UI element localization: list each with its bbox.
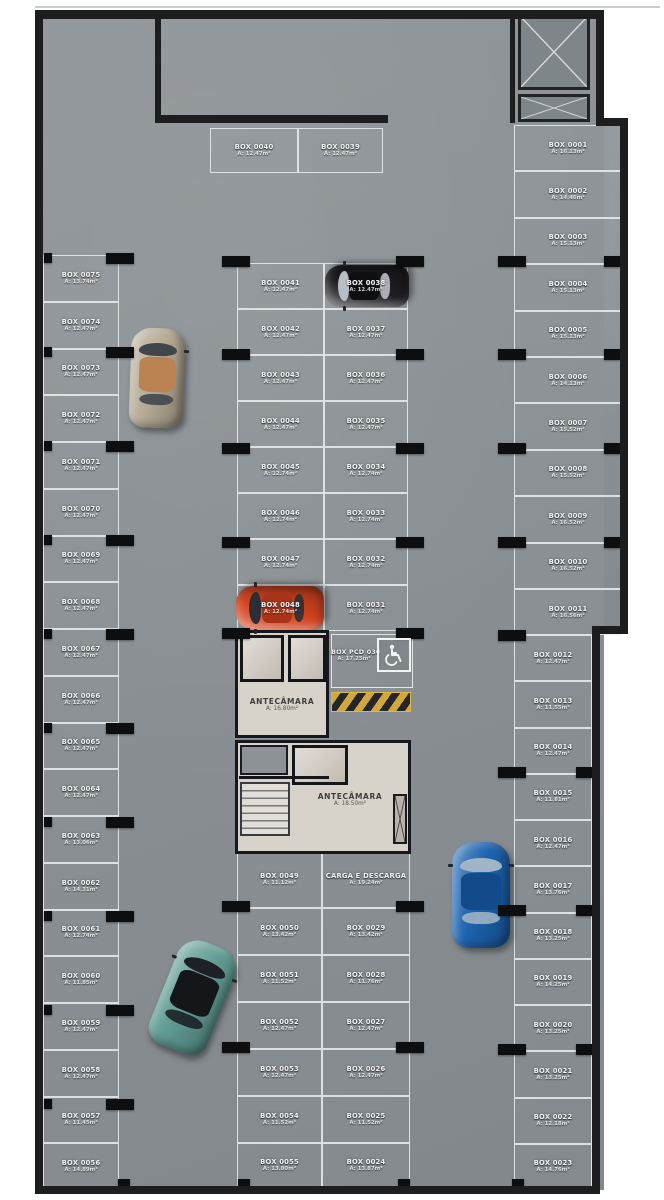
wall-bottom [35,1186,600,1194]
stall-label: BOX 0007 [549,419,588,427]
stall-area: A: 12.47m² [536,844,569,851]
stall-area: A: 13.25m² [536,936,569,943]
stall-area: A: 12.18m² [536,1121,569,1128]
structural-column [106,347,134,358]
structural-column [604,537,620,548]
blue-car [452,842,510,948]
parking-stall-box-0070: BOX 0070A: 12.47m² [43,489,119,536]
stall-label: BOX 0067 [62,645,101,653]
stall-area: A: 12.47m² [264,379,297,386]
parking-stall-box-0064: BOX 0064A: 12.47m² [43,769,119,816]
stall-area: A: 13.76m² [536,890,569,897]
wall-left [35,10,43,1194]
parking-stall-box-0033: BOX 0033A: 12.74m² [324,493,408,539]
structural-column [106,817,134,828]
stall-label: BOX 0024 [347,1158,386,1166]
parking-stall-carga-e-descarga: CARGA E DESCARGAA: 19.24m² [322,850,410,908]
parking-stall-box-0054: BOX 0054A: 11.52m² [237,1096,322,1143]
stall-area: A: 11.52m² [263,1120,296,1127]
stall-area: A: 12.47m² [64,1027,97,1034]
parking-stall-box-0021: BOX 0021A: 13.25m² [514,1051,592,1097]
stall-area: A: 12.74m² [264,517,297,524]
stall-area: A: 15.13m² [551,288,584,295]
stall-label: BOX 0063 [62,832,101,840]
stall-label: BOX 0009 [549,512,588,520]
stall-label: BOX 0014 [534,743,573,751]
parking-stall-box-0010: BOX 0010A: 16.52m² [514,543,622,589]
stall-label: BOX 0055 [260,1158,299,1166]
parking-stall-box-0019: BOX 0019A: 14.25m² [514,959,592,1005]
structural-column [498,537,526,548]
core-lobby-room [292,745,348,785]
structural-column [222,628,250,639]
parking-stall-box-0029: BOX 0029A: 13.42m² [322,908,410,955]
stall-label: BOX 0075 [62,271,101,279]
parking-stall-box-0018: BOX 0018A: 13.25m² [514,913,592,959]
stall-label: BOX 0017 [534,882,573,890]
stall-area: A: 14.46m² [551,195,584,202]
structural-column [498,905,526,916]
parking-stall-box-0022: BOX 0022A: 12.18m² [514,1098,592,1144]
stall-area: A: 16.56m² [551,613,584,620]
parking-stall-box-0050: BOX 0050A: 13.42m² [237,908,322,955]
stall-area: A: 14.31m² [64,887,97,894]
structural-column [106,441,134,452]
stall-label: BOX 0036 [347,371,386,379]
stall-area: A: 11.76m² [349,979,382,986]
stall-area: A: 12.47m² [64,793,97,800]
parking-stall-box-0002: BOX 0002A: 14.46m² [514,171,622,217]
stall-label: BOX 0018 [534,928,573,936]
structural-column [44,253,52,263]
stall-area: A: 11.52m² [263,979,296,986]
stall-label: BOX 0066 [62,692,101,700]
stall-area: A: 13.42m² [263,932,296,939]
stall-label: BOX 0011 [549,605,588,613]
stall-label: BOX 0062 [62,879,101,887]
structural-column [396,537,424,548]
stall-area: A: 12.47m² [324,151,357,158]
stall-area: A: 12.47m² [349,333,382,340]
stall-label: BOX 0060 [62,972,101,980]
structural-column [396,256,424,267]
parking-stall-box-0068: BOX 0068A: 12.47m² [43,582,119,629]
structural-column [106,1099,134,1110]
stall-area: A: 12.47m² [64,326,97,333]
structural-column [44,441,52,451]
stall-area: A: 19.24m² [349,880,382,887]
car-mirror-right [184,350,189,353]
structural-column [604,349,620,360]
stall-label: BOX 0004 [549,280,588,288]
wall-right-upper [596,10,604,126]
pcd-stall-label: BOX PCD 030 A: 17.25m² [331,648,377,663]
structural-column [576,1044,592,1055]
car-mirror-right [509,864,514,867]
structural-column [498,767,526,778]
stall-area: A: 14.13m² [551,381,584,388]
parking-stall-box-0025: BOX 0025A: 11.52m² [322,1096,410,1143]
stall-area: A: 16.52m² [551,566,584,573]
structural-column [106,911,134,922]
stall-area: A: 12.74m² [349,609,382,616]
structural-column [604,443,620,454]
structural-column [498,443,526,454]
structural-column [396,1042,424,1053]
stall-area: A: 12.47m² [237,151,270,158]
parking-stall-box-0035: BOX 0035A: 12.47m² [324,401,408,447]
parking-stall-box-0043: BOX 0043A: 12.47m² [237,355,324,401]
parking-stall-box-0004: BOX 0004A: 15.13m² [514,264,622,310]
stall-area: A: 13.80m² [263,1166,296,1173]
stall-area: A: 12.47m² [64,606,97,613]
car-mirror-left [448,864,453,867]
stall-area: A: 12.47m² [64,700,97,707]
parking-stall-box-0046: BOX 0046A: 12.74m² [237,493,324,539]
stall-label: BOX 0013 [534,697,573,705]
parking-stall-box-0024: BOX 0024A: 13.87m² [322,1143,410,1188]
structural-column [604,256,620,267]
structural-column [222,537,250,548]
stall-label: BOX 0028 [347,971,386,979]
stall-label: BOX 0053 [260,1065,299,1073]
structural-column [44,535,52,545]
stall-area: A: 13.25m² [536,1029,569,1036]
structural-column [106,723,134,734]
parking-stall-box-0009: BOX 0009A: 16.52m² [514,496,622,542]
parking-stall-box-0049: BOX 0049A: 11.12m² [237,850,322,908]
stall-label: BOX 0054 [260,1112,299,1120]
stall-label: BOX 0022 [534,1113,573,1121]
stall-label: BOX 0043 [261,371,300,379]
wheelchair-icon [382,643,406,667]
stall-area: A: 12.74m² [264,471,297,478]
stall-area: A: 12.47m² [64,419,97,426]
core-service-room [240,745,288,775]
stall-area: A: 12.47m² [349,1073,382,1080]
parking-stall-box-0074: BOX 0074A: 12.47m² [43,302,119,349]
parking-stall-box-0066: BOX 0066A: 12.47m² [43,676,119,723]
wall-interior-horizontal [155,115,388,123]
stall-area: A: 11.85m² [64,980,97,987]
structural-column [44,1005,52,1015]
stall-label: BOX 0025 [347,1112,386,1120]
structural-column [222,256,250,267]
stall-label: BOX 0040 [235,143,274,151]
stall-label: BOX 0048 [261,601,300,609]
stall-area: A: 12.47m² [64,466,97,473]
stall-label: BOX 0027 [347,1018,386,1026]
parking-stall-box-0015: BOX 0015A: 11.81m² [514,774,592,820]
stall-area: A: 13.06m² [64,840,97,847]
parking-stall-box-0026: BOX 0026A: 12.47m² [322,1049,410,1096]
ventilation-shaft-large [518,14,590,90]
car-rear-window [462,912,499,924]
stall-area: A: 14.89m² [64,1167,97,1174]
stall-label: BOX 0072 [62,411,101,419]
stall-area: A: 11.12m² [263,880,296,887]
parking-stall-box-0045: BOX 0045A: 12.74m² [237,447,324,493]
structural-column [44,629,52,639]
stall-label: BOX 0047 [261,555,300,563]
stall-label: BOX 0026 [347,1065,386,1073]
ventilation-shaft-small [518,94,590,122]
cross-braced-shaft-icon [521,97,587,119]
stall-area: A: 12.74m² [264,563,297,570]
stall-area: A: 12.47m² [264,287,297,294]
stall-area: A: 12.47m² [263,1026,296,1033]
stall-label: BOX 0001 [549,141,588,149]
stall-label: BOX 0039 [321,143,360,151]
structural-column [222,1042,250,1053]
stall-area: A: 12.74m² [349,517,382,524]
stall-label: BOX 0049 [260,872,299,880]
structural-column [222,901,250,912]
parking-stall-box-0028: BOX 0028A: 11.76m² [322,955,410,1002]
wall-right-mid [620,122,628,634]
stall-area: A: 12.74m² [349,471,382,478]
stall-area: A: 16.13m² [551,149,584,156]
stall-area: A: 12.74m² [349,563,382,570]
stall-area: A: 15.13m² [551,241,584,248]
beige-convertible-car [128,327,185,429]
stall-area: A: 14.25m² [536,982,569,989]
stall-label: BOX 0058 [62,1066,101,1074]
stall-area: A: 12.47m² [349,379,382,386]
structural-column [44,817,52,827]
stall-area: A: 12.47m² [64,513,97,520]
stall-area: A: 11.55m² [536,705,569,712]
stall-label: BOX 0044 [261,417,300,425]
structural-column [498,256,526,267]
car-roof [461,873,500,910]
stall-area: A: 12.74m² [264,609,297,616]
stall-area: A: 12.47m² [64,746,97,753]
stall-label: BOX 0034 [347,463,386,471]
stall-area: A: 15.13m² [551,334,584,341]
stall-area: A: 13.87m² [349,1166,382,1173]
stall-area: A: 12.74m² [64,933,97,940]
stall-label: BOX 0068 [62,598,101,606]
stall-area: A: 12.47m² [349,425,382,432]
antechamber-lower-label: ANTECÂMARA A: 18.50m² [300,792,400,808]
parking-stall-box-0072: BOX 0072A: 12.47m² [43,395,119,442]
structural-column [498,630,526,641]
stall-label: BOX 0002 [549,187,588,195]
parking-stall-box-0016: BOX 0016A: 12.47m² [514,820,592,866]
stall-label: BOX 0037 [347,325,386,333]
stall-area: A: 13.25m² [536,1075,569,1082]
stall-label: BOX 0032 [347,555,386,563]
car-roof [138,356,176,392]
parking-stall-box-0060: BOX 0060A: 11.85m² [43,956,119,1003]
parking-stall-box-0006: BOX 0006A: 14.13m² [514,357,622,403]
stall-label: BOX 0050 [260,924,299,932]
structural-column [106,1005,134,1016]
stall-label: BOX 0074 [62,318,101,326]
stall-label: BOX 0006 [549,373,588,381]
parking-stall-box-0036: BOX 0036A: 12.47m² [324,355,408,401]
car-mirror-left [343,306,346,311]
stall-label: BOX 0016 [534,836,573,844]
stall-label: BOX 0071 [62,458,101,466]
stall-area: A: 12.47m² [64,653,97,660]
structural-column [44,347,52,357]
antechamber-upper-label: ANTECÂMARA A: 16.80m² [235,697,329,713]
elevator-shaft-1 [240,635,284,682]
structural-column [106,535,134,546]
stall-area: A: 14.76m² [536,1167,569,1174]
parking-stall-box-0039: BOX 0039A: 12.47m² [298,128,383,173]
structural-column [44,1099,52,1109]
parking-stall-box-0023: BOX 0023A: 14.76m² [514,1144,592,1190]
stall-label: BOX 0051 [260,971,299,979]
stall-label: BOX 0059 [62,1019,101,1027]
parking-stall-box-0044: BOX 0044A: 12.47m² [237,401,324,447]
parking-stall-box-0051: BOX 0051A: 11.52m² [237,955,322,1002]
stall-area: A: 15.52m² [551,473,584,480]
structural-column [396,349,424,360]
cross-braced-shaft-icon [521,17,587,87]
stall-label: BOX 0035 [347,417,386,425]
stall-label: BOX 0052 [260,1018,299,1026]
parking-floor-plan: ANTECÂMARA A: 16.80m² BOX PCD 030 A: 17.… [0,0,664,1200]
stall-area: A: 12.47m² [349,1026,382,1033]
stall-area: A: 13.74m² [64,279,97,286]
parking-stall-box-0012: BOX 0012A: 12.47m² [514,635,592,681]
structural-column [106,629,134,640]
structural-column [44,911,52,921]
stall-area: A: 12.47m² [264,333,297,340]
structural-column [222,349,250,360]
parking-stall-box-0008: BOX 0008A: 15.52m² [514,450,622,496]
stall-label: BOX 0033 [347,509,386,517]
wall-top [35,10,604,19]
stall-area: A: 11.81m² [536,797,569,804]
stall-label: BOX 0046 [261,509,300,517]
stall-label: BOX 0012 [534,651,573,659]
structural-column [222,443,250,454]
elevator-shaft-2 [288,635,326,682]
stall-label: BOX 0064 [62,785,101,793]
parking-stall-box-0062: BOX 0062A: 14.31m² [43,863,119,910]
stall-label: BOX 0021 [534,1067,573,1075]
core-inner-wall-h [239,776,329,779]
stairwell [240,782,290,836]
car-mirror-right [343,261,346,266]
parking-stall-box-0056: BOX 0056A: 14.89m² [43,1143,119,1190]
stall-area: A: 11.45m² [64,1120,97,1127]
parking-stall-box-0042: BOX 0042A: 12.47m² [237,309,324,355]
structural-column [106,253,134,264]
stall-area: A: 11.52m² [349,1120,382,1127]
roof-overhang-line [35,6,660,8]
stall-label: BOX 0056 [62,1159,101,1167]
stall-area: A: 12.47m² [264,425,297,432]
structural-column [576,905,592,916]
stall-area: A: 12.47m² [349,287,382,294]
stall-label: BOX 0042 [261,325,300,333]
wall-shaft-divider [510,19,515,123]
stall-label: BOX 0041 [261,279,300,287]
car-windshield [460,858,502,872]
stall-area: A: 12.47m² [64,559,97,566]
car-windshield [249,592,260,624]
stall-label: CARGA E DESCARGA [326,872,406,880]
stall-area: A: 12.47m² [536,751,569,758]
stall-label: BOX 0029 [347,924,386,932]
stall-label: BOX 0070 [62,505,101,513]
wall-right-lower [592,630,600,1194]
stall-area: A: 12.47m² [64,1074,97,1081]
stall-area: A: 15.52m² [551,427,584,434]
hazard-striped-zone [331,692,411,712]
parking-stall-box-0001: BOX 0001A: 16.13m² [514,125,622,171]
structural-column [396,901,424,912]
parking-stall-box-0013: BOX 0013A: 11.55m² [514,681,592,727]
structural-column [396,443,424,454]
accessibility-sign [377,638,411,672]
stall-area: A: 16.52m² [551,520,584,527]
stall-label: BOX 0020 [534,1021,573,1029]
parking-stall-box-0031: BOX 0031A: 12.74m² [324,585,408,631]
parking-stall-box-0047: BOX 0047A: 12.74m² [237,539,324,585]
stall-area: A: 12.47m² [536,659,569,666]
stall-label: BOX 0045 [261,463,300,471]
parking-stall-box-0058: BOX 0058A: 12.47m² [43,1050,119,1097]
structural-column [44,723,52,733]
structural-column [576,767,592,778]
structural-column [498,1044,526,1055]
stall-label: BOX 0031 [347,601,386,609]
stall-label: BOX 0038 [347,279,386,287]
parking-stall-box-0040: BOX 0040A: 12.47m² [210,128,298,173]
parking-stall-box-0041: BOX 0041A: 12.47m² [237,263,324,309]
wall-interior-vertical [155,19,161,123]
stall-area: A: 12.47m² [64,372,97,379]
structural-column [498,349,526,360]
parking-stall-box-0053: BOX 0053A: 12.47m² [237,1049,322,1096]
stall-area: A: 12.47m² [263,1073,296,1080]
stall-area: A: 13.42m² [349,932,382,939]
